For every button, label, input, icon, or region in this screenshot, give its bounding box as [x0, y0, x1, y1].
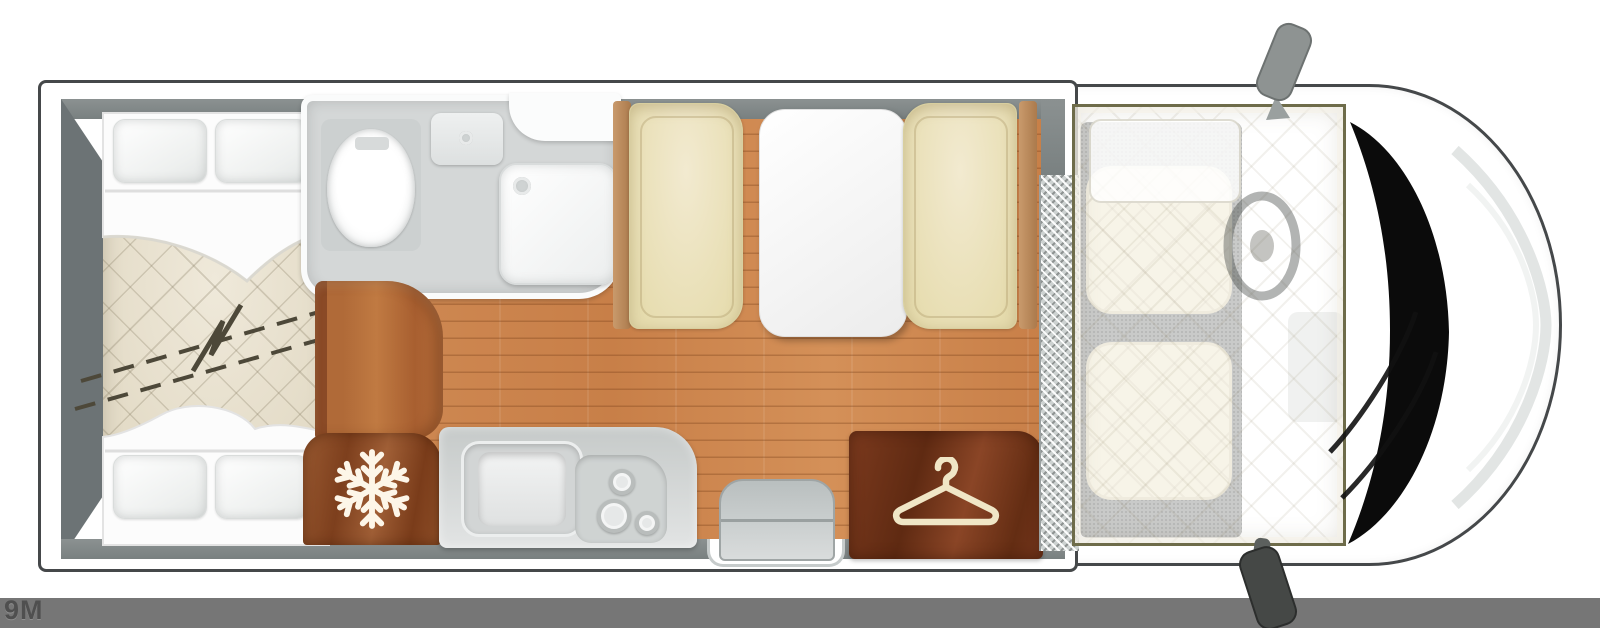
- dinette-bench-right-back: [1019, 101, 1037, 329]
- footer-bar: 9M: [0, 598, 1600, 628]
- kitchen-sink-bowl: [478, 452, 566, 526]
- fridge: [303, 433, 441, 545]
- dinette-table: [759, 109, 907, 337]
- washroom-shelf: [509, 93, 621, 141]
- snowflake-icon: [330, 447, 414, 531]
- entrance-step: [719, 479, 835, 561]
- hanger-icon: [881, 457, 1011, 533]
- dinette-bench-left: [629, 103, 743, 329]
- model-label: 9M: [4, 595, 44, 626]
- pillow: [215, 119, 309, 183]
- kitchen-unit: [439, 427, 697, 548]
- floorplan-canvas: 9M: [0, 0, 1600, 628]
- bed-extension-break-line: [75, 305, 329, 409]
- pillow: [215, 455, 309, 519]
- burner: [609, 469, 635, 495]
- kitchen-sink: [461, 441, 583, 537]
- washbasin-drain: [459, 131, 473, 145]
- washroom: [301, 95, 621, 299]
- bed-step-cabinet: [315, 281, 443, 439]
- drop-down-bed-pillow: [1089, 119, 1241, 203]
- burner: [597, 499, 631, 533]
- burner: [635, 511, 659, 535]
- toilet-hinge: [355, 137, 389, 150]
- habitation-area: [38, 80, 1078, 572]
- pillow: [113, 455, 207, 519]
- wardrobe: [849, 431, 1043, 559]
- drop-down-bed: [1072, 104, 1346, 546]
- pillow: [113, 119, 207, 183]
- shower-drain: [513, 177, 531, 195]
- hob: [575, 455, 667, 543]
- dinette-bench-right: [903, 103, 1017, 329]
